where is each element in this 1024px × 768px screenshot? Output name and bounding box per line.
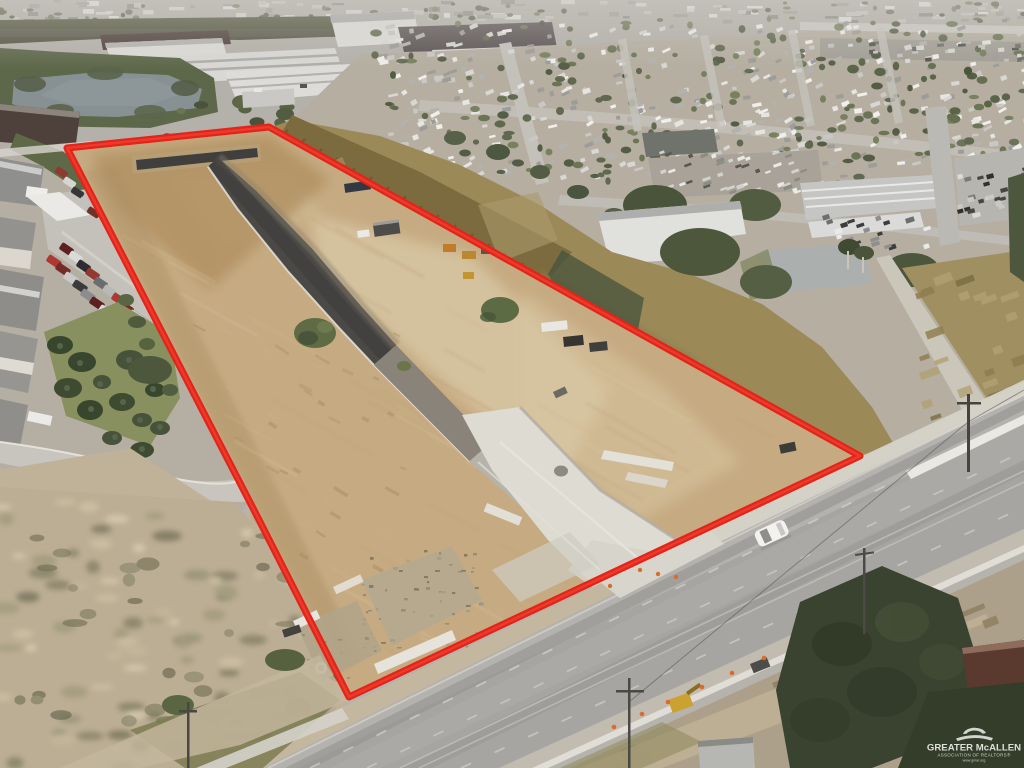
svg-text:www.gmar.org: www.gmar.org xyxy=(963,759,986,763)
svg-text:ASSOCIATION OF REALTORS®: ASSOCIATION OF REALTORS® xyxy=(937,753,1011,758)
